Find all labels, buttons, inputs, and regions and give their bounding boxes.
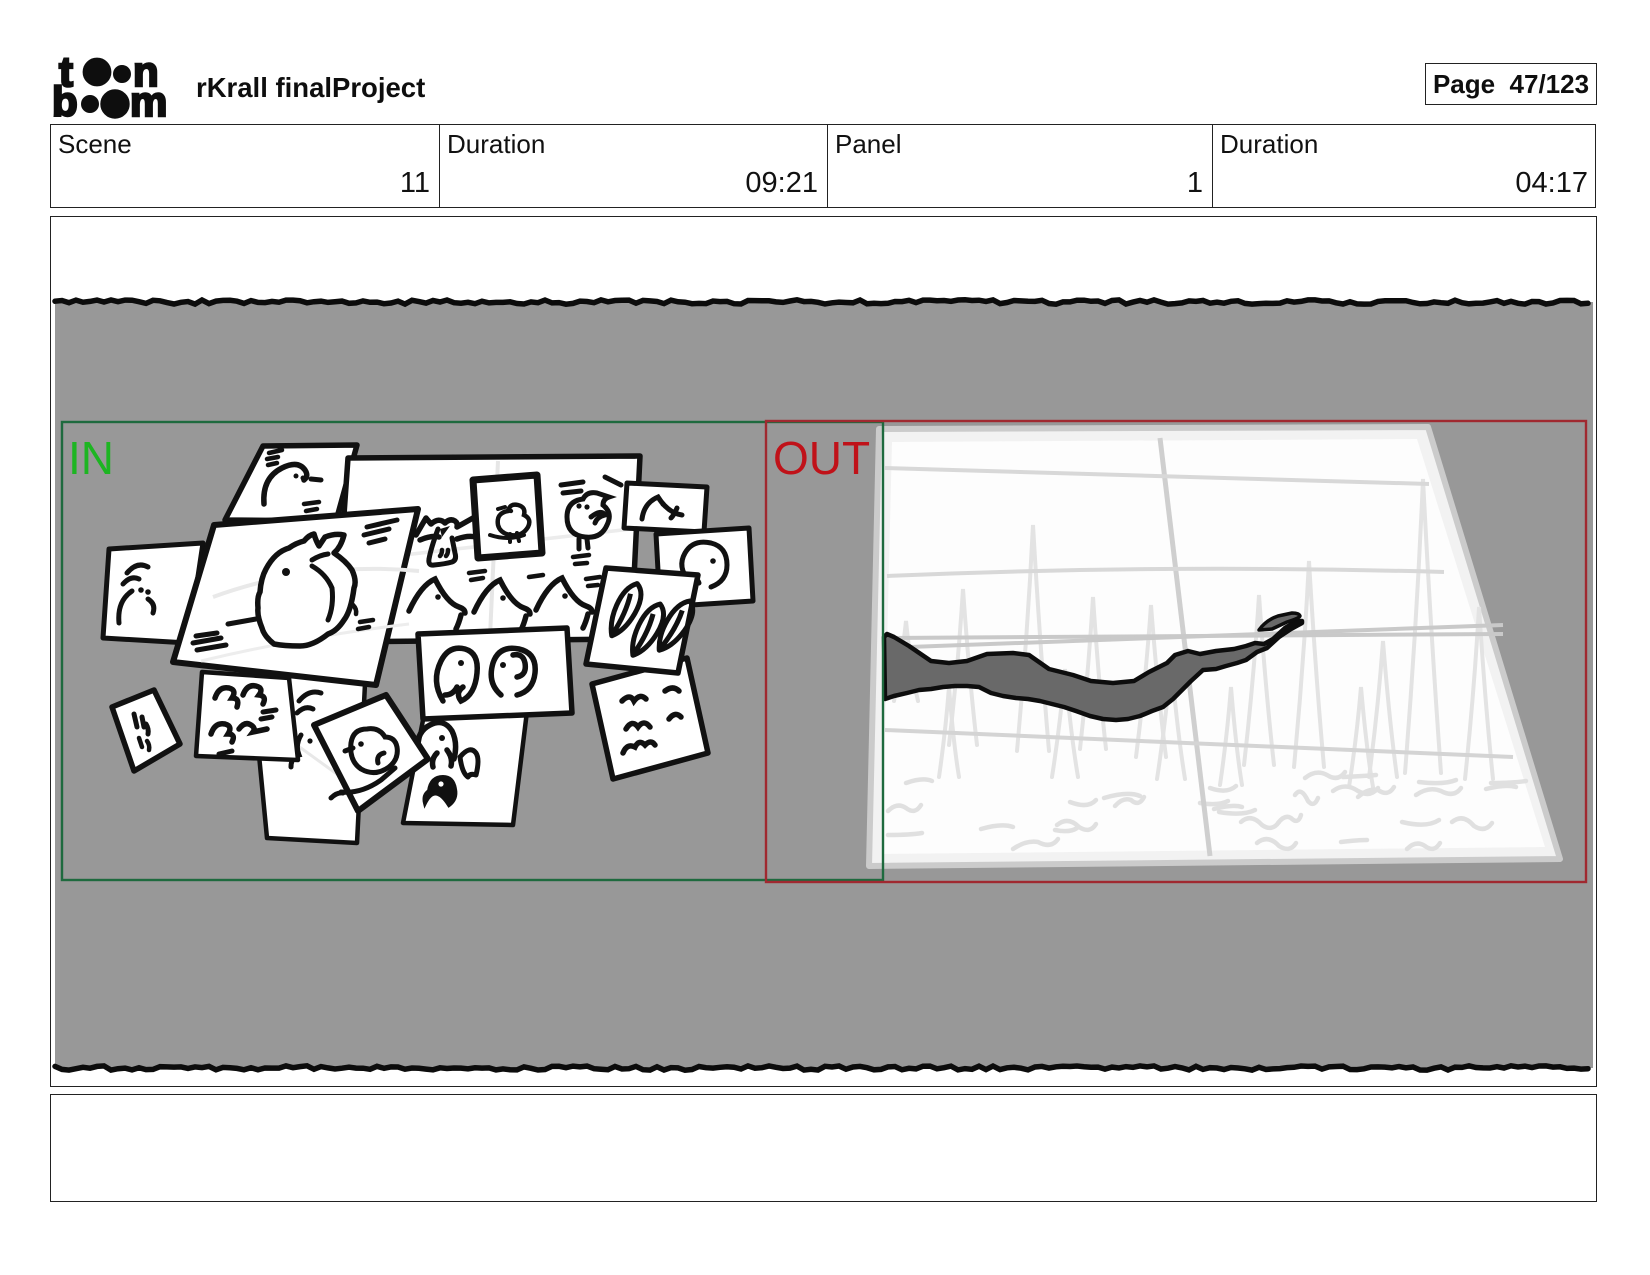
svg-text:OUT: OUT bbox=[773, 432, 870, 484]
svg-text:b: b bbox=[52, 78, 78, 120]
svg-text:IN: IN bbox=[68, 432, 114, 484]
svg-text:m: m bbox=[130, 78, 167, 120]
